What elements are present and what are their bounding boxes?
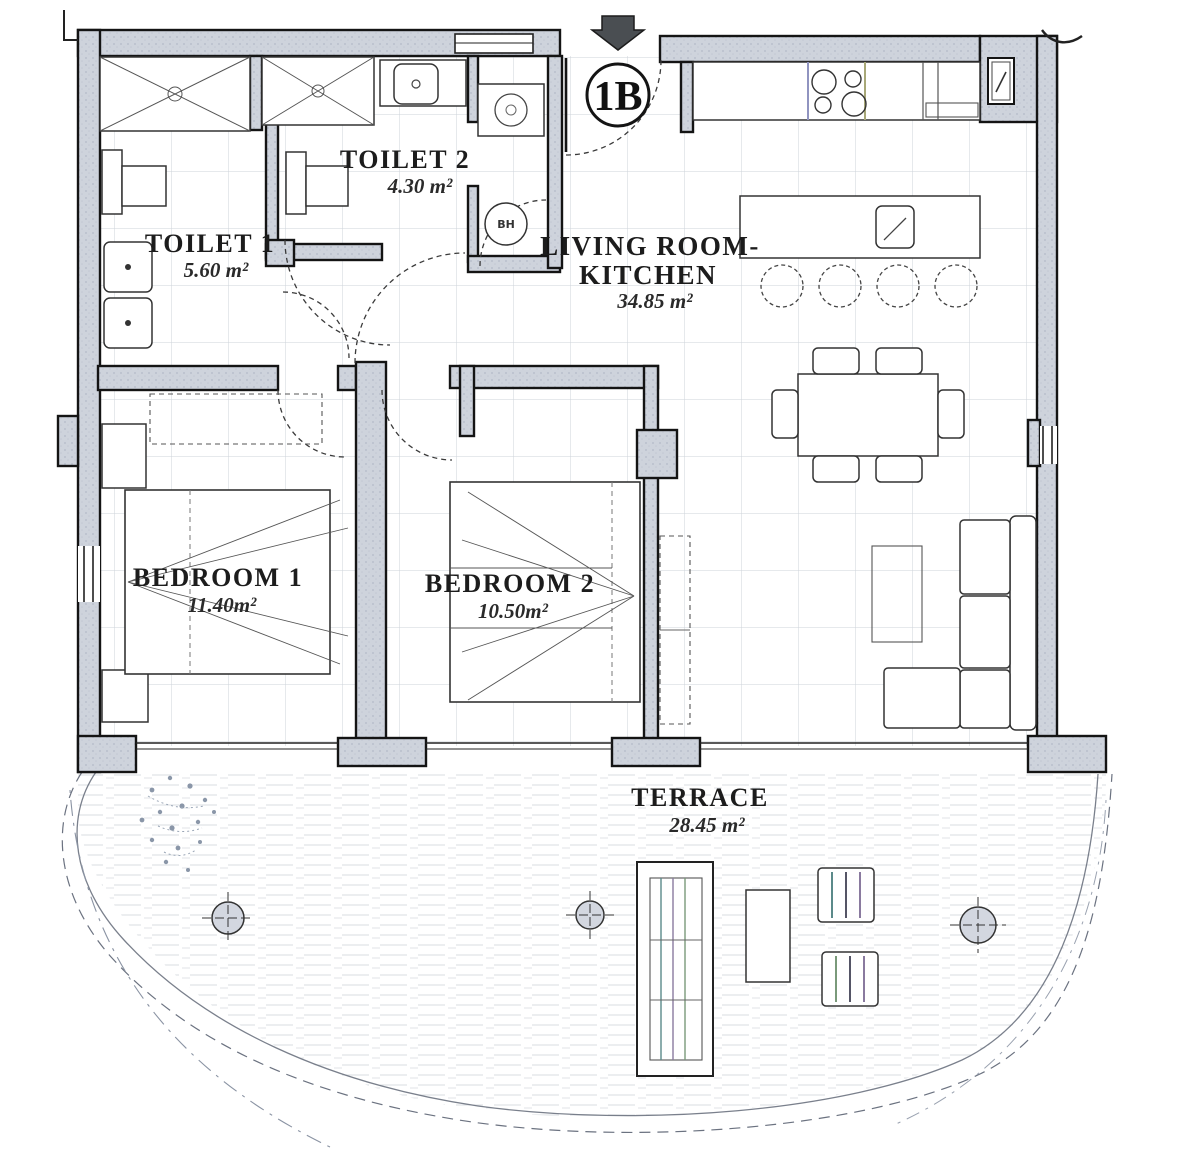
unit-badge-label: 1B	[593, 74, 642, 120]
washbasin-1	[122, 166, 166, 206]
sofa-seat	[960, 670, 1010, 728]
terrace-area: 28.45 m²	[668, 813, 745, 837]
wc-1-drain-icon	[125, 264, 131, 270]
sofa-seat	[960, 596, 1010, 668]
vanity-cabinet-1	[102, 150, 122, 214]
floor-plan-page: BH	[0, 0, 1200, 1151]
kitchen-island	[740, 196, 980, 258]
terrace-chair	[822, 952, 878, 1006]
washing-machine	[478, 84, 544, 136]
living-kitchen-name-line1: LIVING ROOM-	[540, 231, 760, 261]
water-heater-label: BH	[497, 218, 515, 231]
kitchen-counter	[693, 62, 980, 120]
dining-chair	[813, 348, 859, 374]
nightstand-1b	[102, 670, 148, 722]
terrace-area	[62, 772, 1112, 1147]
dining-chair	[813, 456, 859, 482]
entrance: 1B	[587, 16, 649, 126]
bedroom2-name: BEDROOM 2	[425, 569, 595, 598]
bedroom1-area: 11.40m²	[188, 593, 257, 617]
bedroom1-name: BEDROOM 1	[133, 563, 303, 592]
island-sink	[876, 206, 914, 248]
terrace-chair	[818, 868, 874, 922]
toilet2-area: 4.30 m²	[387, 174, 453, 198]
sofa-chaise	[884, 668, 960, 728]
entrance-arrow-icon	[592, 16, 644, 50]
vanity-cabinet-2	[286, 152, 306, 214]
bidet-1-drain-icon	[125, 320, 131, 326]
sink-2	[394, 64, 438, 104]
dining-chair	[876, 348, 922, 374]
nightstand-1a	[102, 424, 146, 488]
living-kitchen-name-line2: KITCHEN	[579, 260, 717, 290]
dining-chair	[938, 390, 964, 438]
bedroom2-area: 10.50m²	[478, 599, 549, 623]
toilet1-area: 5.60 m²	[184, 258, 249, 282]
sofa-back	[1010, 516, 1036, 730]
dining-chair	[772, 390, 798, 438]
dining-table	[798, 374, 938, 456]
floor-plan-drawing: BH	[0, 0, 1200, 1151]
terrace-name: TERRACE	[631, 783, 769, 812]
dining-chair	[876, 456, 922, 482]
toilet1-name: TOILET 1	[145, 229, 275, 258]
neighbor-wall-tick	[64, 10, 78, 40]
living-kitchen-area: 34.85 m²	[616, 289, 693, 313]
terrace-table	[746, 890, 790, 982]
toilet2-name: TOILET 2	[340, 145, 470, 174]
sofa-seat	[960, 520, 1010, 594]
